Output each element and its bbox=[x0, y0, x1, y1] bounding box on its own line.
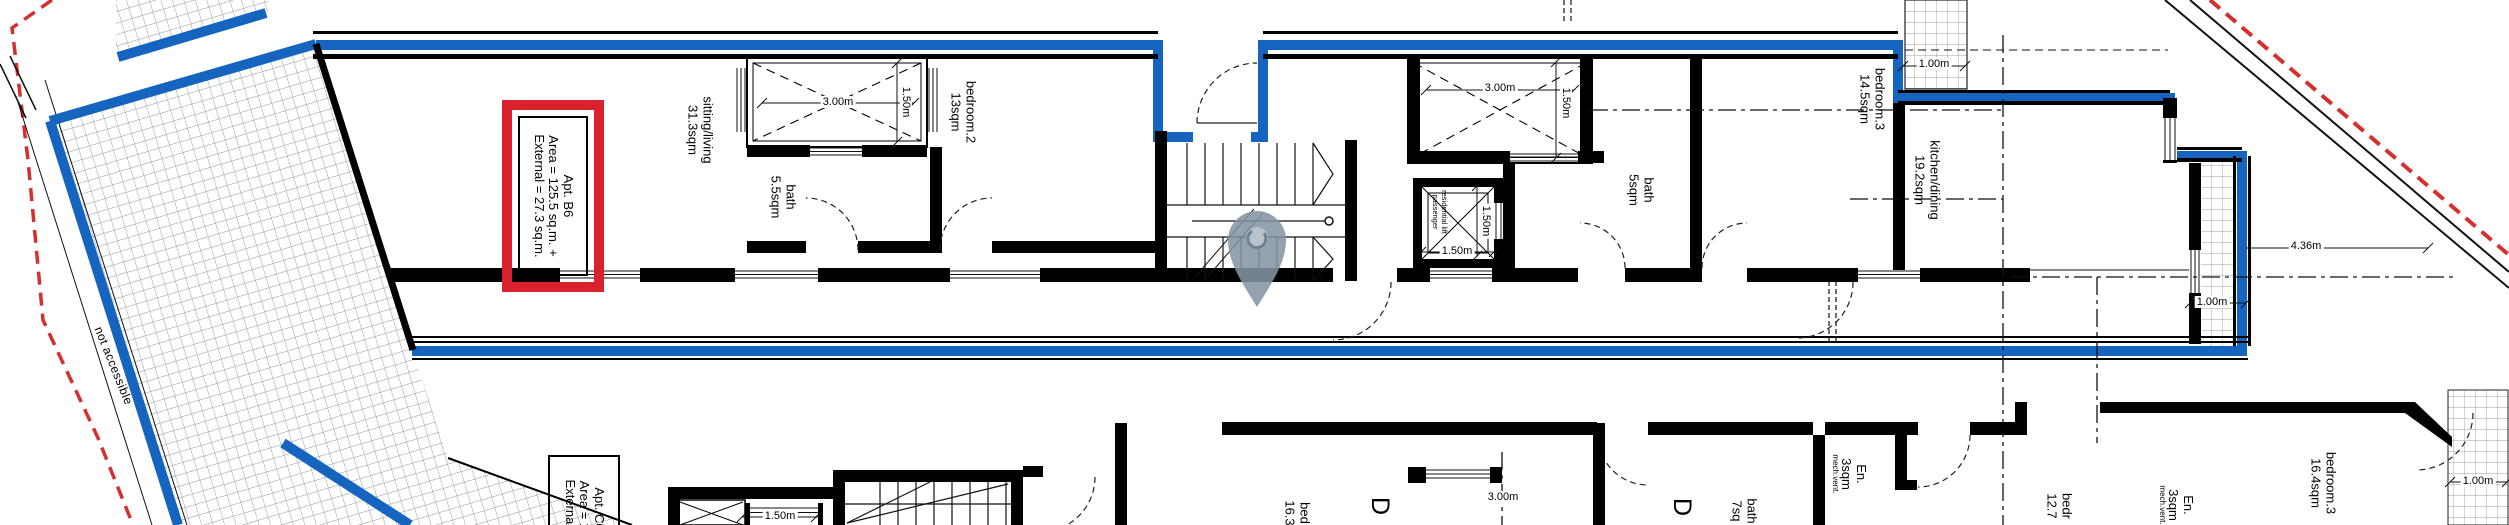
dim-lift-depth: 1.50m bbox=[1480, 204, 1492, 239]
dim-site-edge: 4.36m bbox=[2289, 240, 2324, 252]
staircase-lower bbox=[833, 470, 1023, 525]
floorplan-linework bbox=[0, 0, 2509, 525]
apt-b6-title: Apt. B6 bbox=[560, 134, 575, 257]
apt-c6-title: Apt. C6 bbox=[591, 480, 606, 525]
section-dashes bbox=[1564, 0, 2168, 343]
apt-c6-area: Area = 16 bbox=[577, 480, 592, 525]
dim-balcony-right: 1.00m bbox=[2195, 296, 2230, 308]
dim-shaft1-width: 3.00m bbox=[821, 96, 856, 108]
shaft-2 bbox=[1408, 57, 1604, 163]
apt-c6-external: External = bbox=[562, 480, 577, 525]
dim-lower-shaft: 1.50m bbox=[763, 510, 798, 522]
dim-lower-room: 3.00m bbox=[1486, 491, 1521, 503]
apt-b6-area: Area = 125.5 sq.m. + bbox=[546, 134, 561, 257]
dim-balcony-top: 1.00m bbox=[1917, 58, 1952, 70]
location-pin-icon[interactable] bbox=[1228, 211, 1286, 307]
apt-b6-external: External = 27.3 sq.m. bbox=[531, 134, 546, 257]
dim-shaft2-depth: 1.50m bbox=[1560, 86, 1572, 121]
floorplan-canvas: Apt. B6 Area = 125.5 sq.m. + External = … bbox=[0, 0, 2509, 525]
dim-lift-width: 1.50m bbox=[1440, 245, 1475, 257]
dim-shaft2-width: 3.00m bbox=[1483, 82, 1518, 94]
dim-balcony-lower: 1.00m bbox=[2461, 475, 2496, 487]
dim-shaft1-depth: 1.50m bbox=[900, 85, 912, 120]
